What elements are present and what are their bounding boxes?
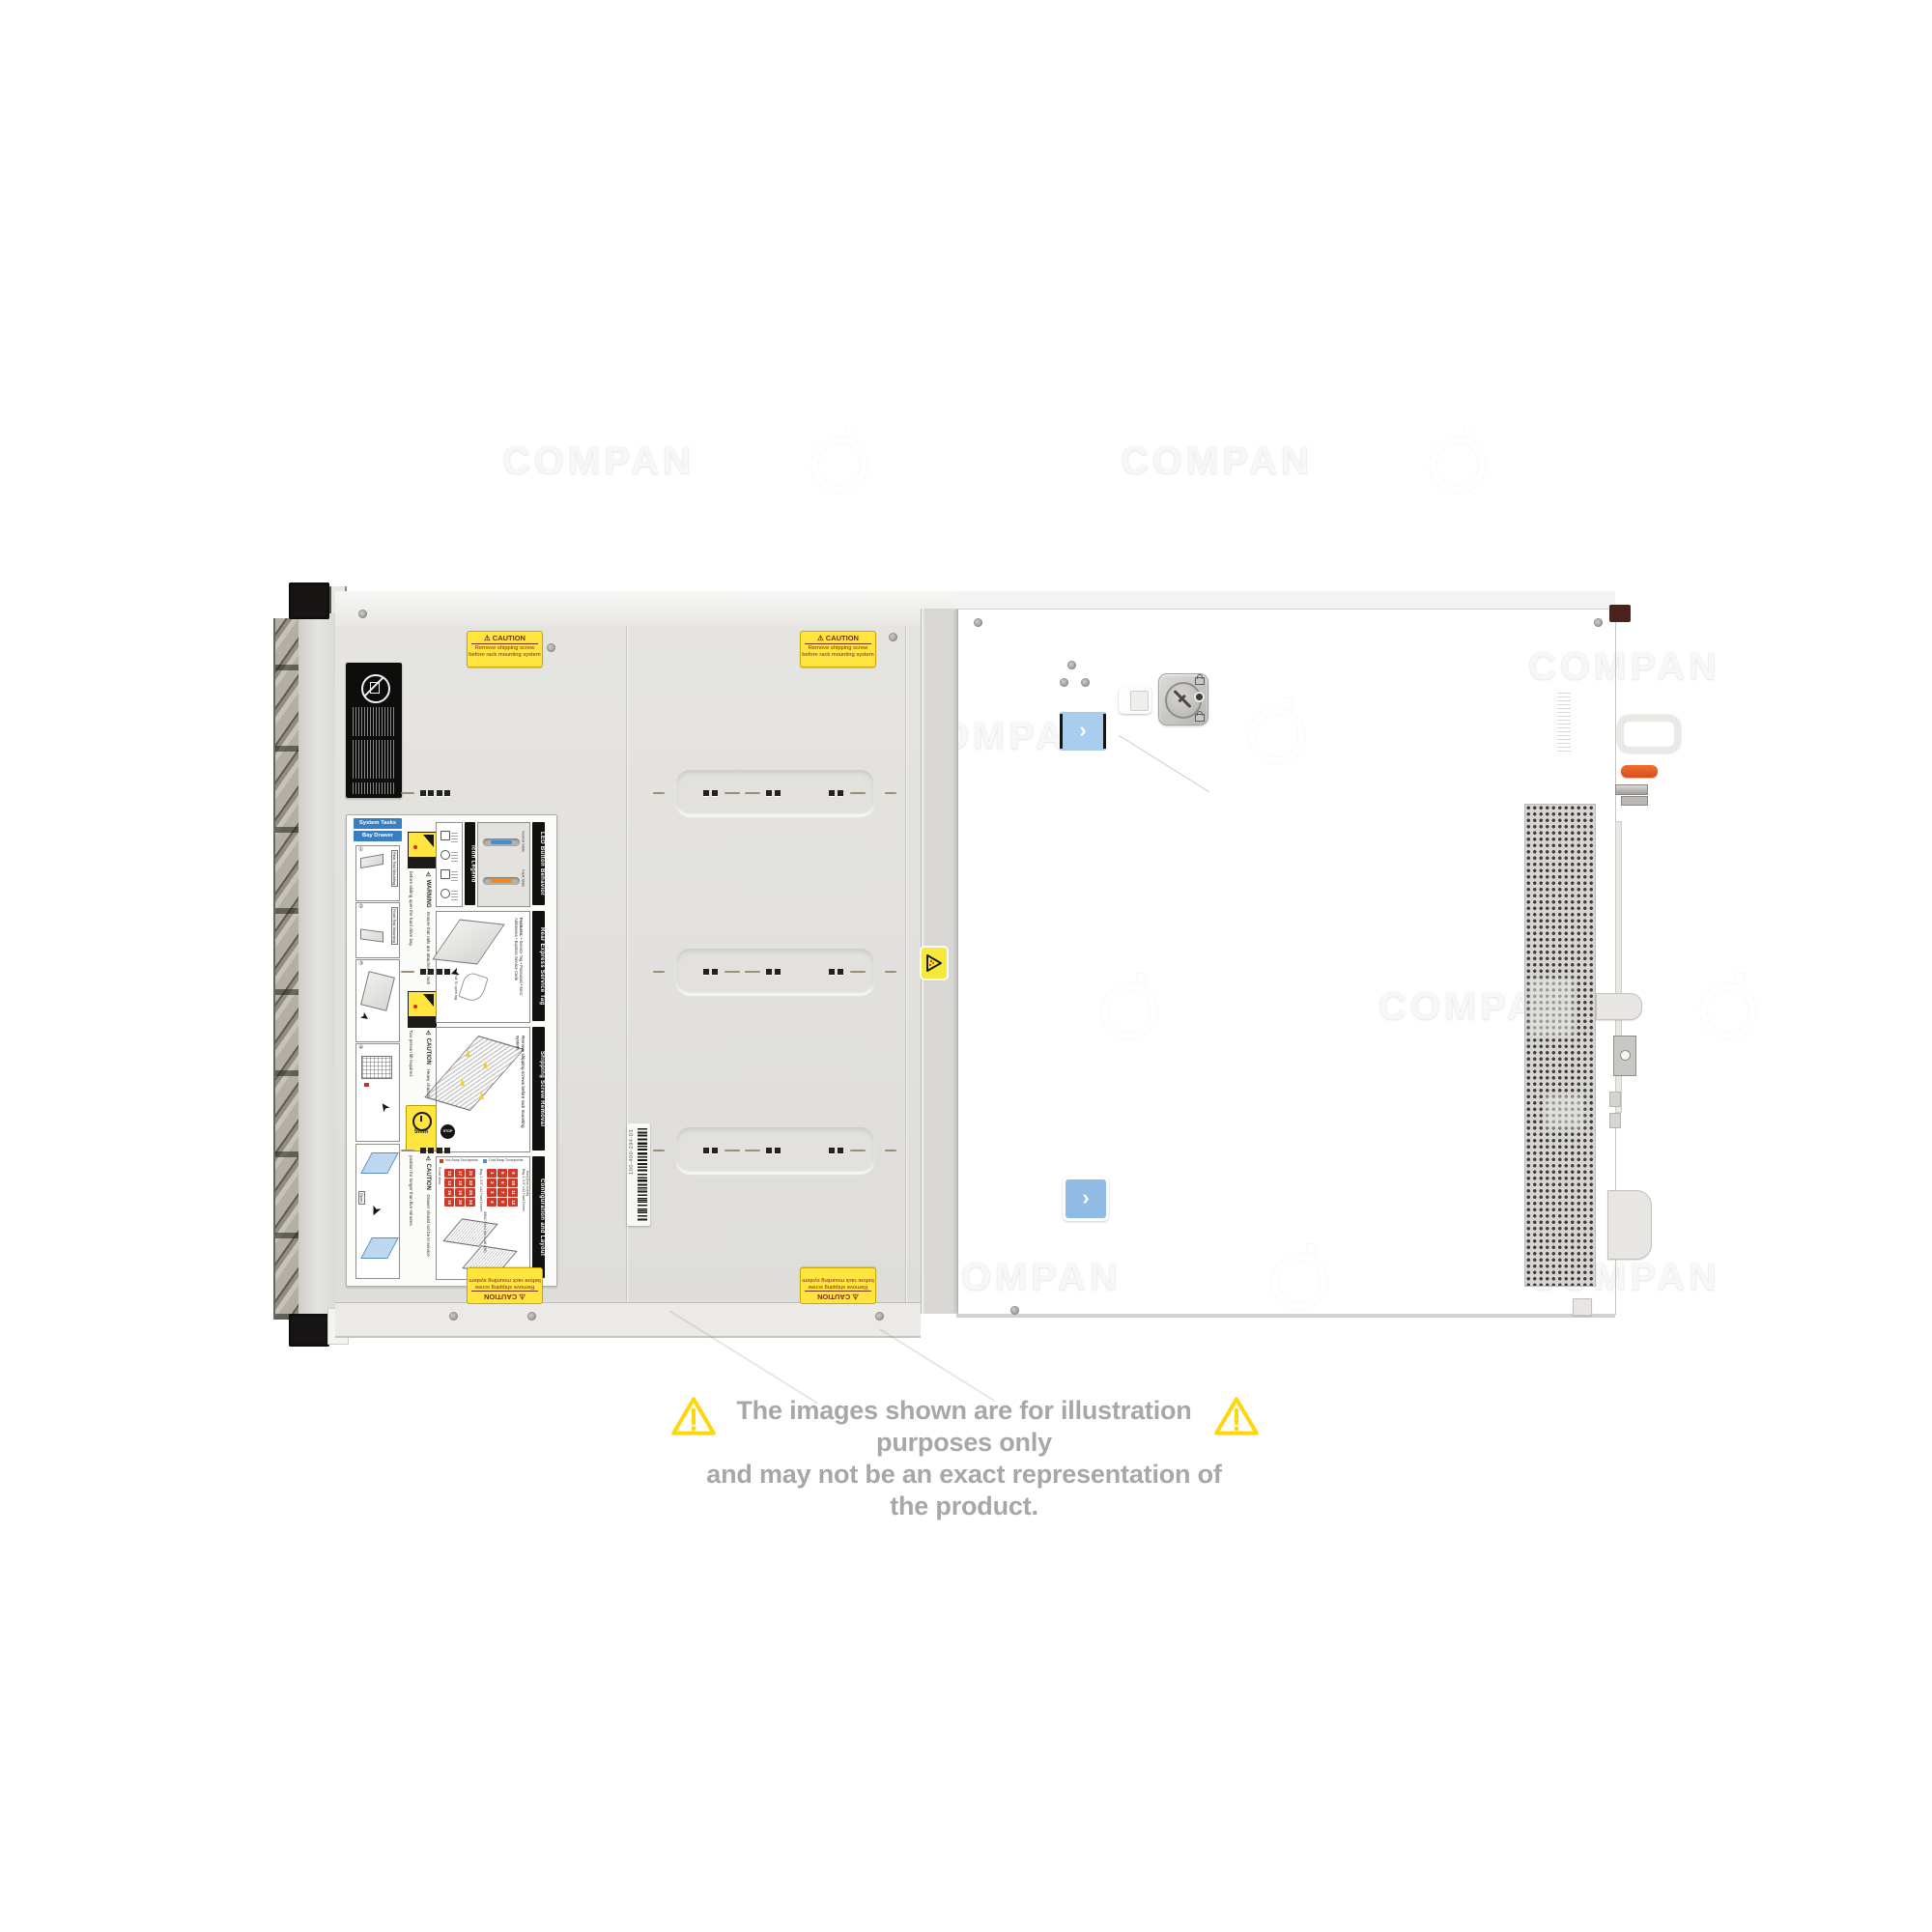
led-normal-blue xyxy=(491,840,512,844)
vent-slot xyxy=(766,969,772,975)
rear-metal-clip xyxy=(1615,784,1648,795)
vent-slot-dash xyxy=(724,971,740,973)
vent-slot xyxy=(703,790,709,796)
chevron-right-icon: › xyxy=(1079,720,1086,741)
vent-slot-dash xyxy=(885,1150,896,1151)
bottom-notch-tab xyxy=(1573,1298,1592,1316)
caution-service-position-block: ⚠ CAUTION Drawer should not be in servic… xyxy=(406,1155,437,1271)
icon-legend-and-led-row: Icon Legend Normal State Fault State LED… xyxy=(436,822,545,907)
cold-swap-legend: Cold Swap Touchpoints xyxy=(489,1158,523,1162)
product-photo-canvas: COMPANCOMPANCOMPANCOMPANCOMPANCOMPANCOMP… xyxy=(0,0,1932,1932)
vent-slot xyxy=(703,1148,709,1153)
drive-number-cell: 14 xyxy=(444,1179,454,1187)
vent-slot xyxy=(444,969,450,975)
rack-ear-top-left xyxy=(289,582,329,619)
legend-icon-text xyxy=(451,850,458,862)
slide-direction-sticker-top: › xyxy=(1060,712,1106,751)
lid-seam-line xyxy=(905,626,906,1302)
hot-swap-legend: Hot Swap Touchpoints xyxy=(445,1158,478,1162)
vent-slot xyxy=(775,790,781,796)
vent-slot xyxy=(838,1148,843,1153)
shipping-header: Shipping Screw Removal xyxy=(532,1027,545,1151)
service-tag-sketch xyxy=(458,971,488,1004)
feature-item: • Express Service Code xyxy=(514,937,519,980)
screw-hole xyxy=(1594,618,1603,627)
barcode-number: 100-400-294-03 xyxy=(629,1129,635,1175)
chevron-right-icon: › xyxy=(1082,1187,1089,1208)
keypad-sketch xyxy=(361,1056,392,1079)
vent-slot xyxy=(428,1148,434,1153)
step-number: ① xyxy=(358,846,363,853)
embossed-micro-text xyxy=(1557,692,1571,752)
warning-triangle-icon xyxy=(1213,1392,1260,1440)
instruction-label: System Tasks Bay Drawer Operation Rear R… xyxy=(346,814,557,1287)
drive-number-cell: 24 xyxy=(466,1198,475,1207)
stop-badge: STOP xyxy=(440,1124,455,1139)
open-label: Open xyxy=(358,1191,365,1205)
vent-slot xyxy=(444,1148,450,1153)
vent-slot xyxy=(437,1148,442,1153)
shipping-screw-caution-sticker: ⚠ CAUTIONRemove shipping screwbefore rac… xyxy=(467,631,543,668)
shipping-screw-caution-sticker: ⚠ CAUTIONRemove shipping screwbefore rac… xyxy=(800,1267,876,1304)
regulatory-fine-print xyxy=(353,707,395,736)
cover-latch-slider xyxy=(1119,687,1151,714)
front-drive-handles xyxy=(273,618,300,1320)
drive-number-cell: 8 xyxy=(497,1198,507,1207)
caution-title: ⚠ CAUTION xyxy=(425,1155,431,1190)
caution-title: ⚠ CAUTION xyxy=(425,1030,431,1065)
five-minute-text: 5min xyxy=(414,1129,428,1135)
bay1-drive-grid: 123456789101112 xyxy=(487,1169,518,1207)
vent-slot-dash xyxy=(850,971,866,973)
sticker-bracket xyxy=(1103,714,1106,749)
screw-hole xyxy=(1060,678,1068,687)
rail-mount-illustration: Rear Rail Mounting ① xyxy=(355,845,400,901)
bay2-drive-grid: 131415161718192021222324 xyxy=(444,1169,475,1207)
drive-number-cell: 15 xyxy=(444,1188,454,1197)
rear-vent-grid xyxy=(1524,804,1596,1287)
led-fault-orange xyxy=(491,879,512,883)
vent-slot xyxy=(428,790,434,796)
drawer-step-illustration: ③ ➤ xyxy=(355,959,400,1042)
caution-sticker-body: Remove shipping screwbefore rack mountin… xyxy=(801,1277,875,1290)
caution-sticker-body: Remove shipping screwbefore rack mountin… xyxy=(468,1277,542,1290)
screw-hole xyxy=(974,618,982,627)
cover-lock-plate xyxy=(1158,673,1208,725)
drive-number-cell: 9 xyxy=(508,1169,518,1178)
drive-number-cell: 4 xyxy=(487,1198,497,1207)
vent-slot xyxy=(428,969,434,975)
regulatory-fine-print xyxy=(353,782,395,794)
vent-slot-dash xyxy=(745,792,760,794)
vent-slot xyxy=(829,1148,835,1153)
vent-slot xyxy=(420,969,426,975)
step-number: ② xyxy=(358,903,363,910)
slide-direction-sticker-bottom: › xyxy=(1063,1177,1109,1221)
shipping-body: Remove shipping screws before rack mount… xyxy=(515,1036,526,1144)
vent-slot-dash xyxy=(850,792,866,794)
vent-slot-dash xyxy=(401,971,414,973)
rail-mount-illustration: Front Rail Mounting ② xyxy=(355,902,400,958)
locked-padlock-icon xyxy=(1195,714,1205,722)
screw-hole xyxy=(875,1312,884,1321)
sticker-bracket xyxy=(1060,714,1063,749)
lid-sketch xyxy=(424,1036,524,1111)
features-heading: Features: xyxy=(519,918,524,937)
blue-panel-sketch xyxy=(360,1237,399,1259)
barcode-sticker: 100-400-294-03 xyxy=(627,1123,650,1226)
drive-number-cell: 10 xyxy=(508,1179,518,1187)
rear-tab xyxy=(1596,993,1642,1020)
configuration-header: Configuration and Layout xyxy=(532,1156,545,1278)
vent-slot-dash xyxy=(724,1150,740,1151)
drive-number-cell: 12 xyxy=(508,1198,518,1207)
chassis-top-edge-right xyxy=(956,591,1615,610)
legend-icon-glyph xyxy=(440,831,450,840)
black-arrow: ➤ xyxy=(376,1099,392,1115)
vent-slot-dash xyxy=(745,971,760,973)
hazard-triangle-icon xyxy=(922,948,947,979)
drive-number-cell: 13 xyxy=(444,1169,454,1178)
rear-metal-latch xyxy=(1621,796,1648,806)
blue-panel-sketch xyxy=(360,1152,399,1174)
chassis-bottom-edge xyxy=(335,1302,921,1338)
regulatory-label xyxy=(346,663,402,798)
service-tag-features: Features: • Service Tag • Password • MAC… xyxy=(514,918,524,1014)
bracket-sketch xyxy=(360,971,395,1011)
caution-sticker-title: ⚠ CAUTION xyxy=(471,634,538,644)
vent-slot xyxy=(829,969,835,975)
shipping-screw-panel: STOP Remove shipping screws before rack … xyxy=(436,1027,530,1152)
regulatory-fine-print xyxy=(353,740,395,779)
rear-latch-bracket xyxy=(1613,1036,1636,1076)
configuration-panel: Hot Swap Touchpoints Cold Swap Touchpoin… xyxy=(436,1156,530,1280)
service-tag-header: Rear Express Service Tag xyxy=(532,911,545,1021)
screw-hole xyxy=(1081,678,1090,687)
drive-number-cell: 21 xyxy=(466,1169,475,1178)
latch-hole xyxy=(1620,1050,1631,1061)
shipping-screw-caution-sticker: ⚠ CAUTIONRemove shipping screwbefore rac… xyxy=(467,1267,543,1304)
black-arrow: ➤ xyxy=(366,1203,385,1220)
label-section-bay-drawer-operation: Bay Drawer Operation xyxy=(354,831,402,841)
drive-number-cell: 20 xyxy=(455,1198,465,1207)
rack-ear-bottom-left xyxy=(289,1314,329,1347)
rear-small-tab xyxy=(1609,1092,1621,1107)
rail-label: Rear Rail Mounting xyxy=(391,850,398,887)
vent-slot xyxy=(712,969,718,975)
rear-small-tab xyxy=(1609,1113,1621,1128)
drive-number-cell: 7 xyxy=(497,1188,507,1197)
pinch-hazard-pictogram xyxy=(408,832,437,868)
vent-slot-dash xyxy=(653,792,665,794)
legend-icon-glyph xyxy=(440,889,450,898)
led-track xyxy=(483,838,520,846)
legend-icon-text xyxy=(451,889,458,900)
icon-legend-panel xyxy=(436,822,463,907)
regulatory-crossed-circle-icon xyxy=(361,674,390,703)
vent-slot-dash xyxy=(885,792,896,794)
led-normal-label: Normal State xyxy=(521,831,525,852)
legend-icon-text xyxy=(451,831,458,842)
rear-tab xyxy=(1607,1190,1652,1260)
icon-legend-header: Icon Legend xyxy=(465,822,476,905)
feature-item: • Service Tag xyxy=(519,937,524,962)
shipping-screw-row: STOP Remove shipping screws before rack … xyxy=(436,1027,545,1152)
vent-slot xyxy=(712,790,718,796)
vent-slot xyxy=(775,1148,781,1153)
drive-number-cell: 19 xyxy=(455,1188,465,1197)
disclaimer-line1: The images shown are for illustration pu… xyxy=(694,1395,1235,1459)
vent-slot xyxy=(703,969,709,975)
chassis-top-edge xyxy=(335,591,956,627)
bay2-label: Bay 2: 3.5" x12 Hard Drives xyxy=(479,1169,483,1211)
front-bezel-lip xyxy=(298,607,336,1329)
vent-slot xyxy=(775,969,781,975)
service-tag-row: ➤ Pull To open tag Features: • Service T… xyxy=(436,911,545,1023)
caution-sticker-title: ⚠ CAUTION xyxy=(805,1291,871,1301)
drop-shadow xyxy=(879,1328,995,1402)
configuration-row: Hot Swap Touchpoints Cold Swap Touchpoin… xyxy=(436,1156,545,1280)
chassis-sketch xyxy=(432,920,504,965)
drive-number-cell: 23 xyxy=(466,1188,475,1197)
vent-slot-dash xyxy=(745,1150,760,1151)
warning-title: ⚠ WARNING xyxy=(425,871,431,908)
drive-number-cell: 11 xyxy=(508,1188,518,1197)
rail-sketch xyxy=(360,928,384,942)
screw-hole xyxy=(449,1312,458,1321)
vent-slot xyxy=(838,969,843,975)
black-arrow: ➤ xyxy=(357,1009,372,1025)
vent-slot xyxy=(829,790,835,796)
feature-item: • Password xyxy=(519,961,524,982)
disclaimer-text: The images shown are for illustration pu… xyxy=(694,1395,1235,1522)
open-drawer-illustration: Open ➤ xyxy=(355,1144,400,1279)
legend-icon-glyph xyxy=(440,869,450,879)
legend-icon-text xyxy=(451,869,458,881)
screw-hole xyxy=(358,610,367,618)
led-track xyxy=(483,877,520,885)
seam-hazard-sticker xyxy=(922,948,947,979)
rear-dark-tab xyxy=(1609,605,1631,622)
drawer-wireframe xyxy=(442,1218,497,1247)
drive-number-cell: 1 xyxy=(487,1169,497,1178)
label-section-system-tasks: System Tasks xyxy=(354,818,402,829)
caution-sticker-title: ⚠ CAUTION xyxy=(805,634,871,644)
five-minute-sticker: 5min xyxy=(406,1105,437,1151)
vent-glare xyxy=(1545,1094,1583,1129)
drive-number-cell: 2 xyxy=(487,1179,497,1187)
caution-sticker-body: Remove shipping screwbefore rack mountin… xyxy=(468,645,542,658)
service-tag-panel: ➤ Pull To open tag Features: • Service T… xyxy=(436,911,530,1023)
chassis-bottom-shadow xyxy=(956,1314,1615,1318)
screw-hole xyxy=(1067,661,1076,669)
drive-number-cell: 3 xyxy=(487,1188,497,1197)
hot-swap-legend-swatch xyxy=(440,1159,443,1163)
unlocked-padlock-icon xyxy=(1195,677,1205,685)
step-number: ③ xyxy=(358,960,363,967)
main-cover-lid xyxy=(956,609,1616,1315)
vent-slot xyxy=(437,969,442,975)
screw-hole xyxy=(889,633,897,641)
lock-indicator-dot xyxy=(1196,694,1203,700)
vent-slot-dash xyxy=(401,792,414,794)
led-fault-label: Fault State xyxy=(521,869,525,887)
disclaimer-line2: and may not be an exact representation o… xyxy=(694,1459,1235,1522)
vent-slot-dash xyxy=(653,971,665,973)
pinch-hazard-pictogram xyxy=(408,991,437,1028)
vent-slot-dash xyxy=(885,971,896,973)
vent-slot xyxy=(420,1148,426,1153)
pull-tag-note: Pull To open tag xyxy=(454,974,458,1000)
keypad-step-illustration: ④ ➤ xyxy=(355,1043,400,1142)
drive-number-cell: 5 xyxy=(497,1169,507,1178)
drive-number-cell: 16 xyxy=(444,1198,454,1207)
vent-slot-dash xyxy=(850,1150,866,1151)
screw-hole xyxy=(1010,1306,1019,1315)
caution-sticker-title: ⚠ CAUTION xyxy=(471,1291,538,1301)
vent-slot xyxy=(444,790,450,796)
red-mark xyxy=(364,1083,369,1087)
vent-slot xyxy=(437,790,442,796)
vent-slot-dash xyxy=(724,792,740,794)
vent-slot xyxy=(712,1148,718,1153)
drive-number-cell: 18 xyxy=(455,1179,465,1187)
rail-label: Front Rail Mounting xyxy=(391,907,398,945)
vent-slot xyxy=(766,790,772,796)
vent-slot xyxy=(420,790,426,796)
vent-slot-dash xyxy=(401,1150,414,1151)
drive-number-cell: 22 xyxy=(466,1179,475,1187)
caution-sticker-body: Remove shipping screwbefore rack mountin… xyxy=(801,645,875,658)
step-number: ④ xyxy=(358,1044,363,1051)
led-header: LED Button Behavior xyxy=(532,822,545,905)
rail-sketch xyxy=(360,854,384,868)
vent-slot xyxy=(766,1148,772,1153)
hdd-activity-label: Hard Drive Activity xyxy=(526,1171,529,1196)
legend-icon-glyph xyxy=(440,850,450,860)
orange-release-lever xyxy=(1621,765,1658,778)
vent-slot-dash xyxy=(653,1150,665,1151)
server-top-view: System Tasks Bay Drawer Operation Rear R… xyxy=(0,0,1932,1932)
front-view-label: Front View xyxy=(438,1167,441,1184)
barcode-stripes xyxy=(638,1128,647,1221)
vent-slot xyxy=(838,790,843,796)
psu-ring-handle xyxy=(1617,715,1681,753)
cold-swap-legend-swatch xyxy=(483,1159,487,1163)
clock-icon xyxy=(412,1112,432,1131)
screw-hole xyxy=(547,643,555,652)
led-behavior-panel: Normal State Fault State xyxy=(477,822,530,907)
screw-hole xyxy=(527,1312,536,1321)
drive-number-cell: 6 xyxy=(497,1179,507,1187)
vent-glare xyxy=(1529,979,1574,1037)
shipping-screw-caution-sticker: ⚠ CAUTIONRemove shipping screwbefore rac… xyxy=(800,631,876,668)
drive-number-cell: 17 xyxy=(455,1169,465,1178)
